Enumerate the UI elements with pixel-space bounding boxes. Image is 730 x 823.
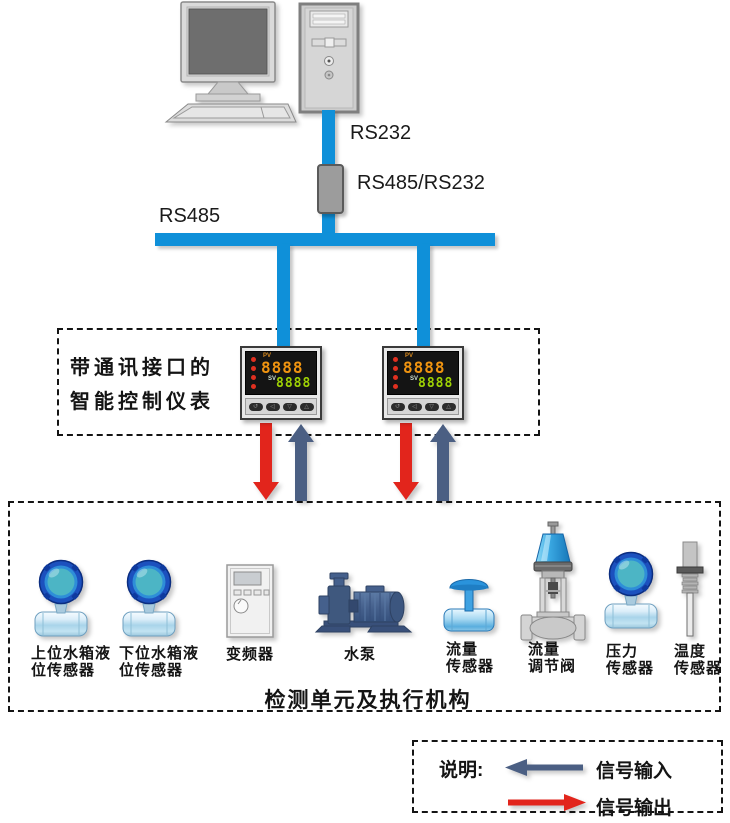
device-label: 变频器 bbox=[224, 646, 276, 663]
led-indicator bbox=[393, 384, 398, 389]
sv-label: SV bbox=[410, 376, 418, 382]
converter-label: RS485/RS232 bbox=[357, 172, 485, 195]
led-indicator bbox=[251, 375, 256, 380]
device-label: 流量 传感器 bbox=[446, 641, 494, 675]
led-indicator bbox=[251, 366, 256, 371]
controller-display: PV 8888 SV 8888 bbox=[245, 351, 317, 395]
sv-label: SV bbox=[268, 376, 276, 382]
rs485-label: RS485 bbox=[159, 205, 220, 228]
device-label: 温度 传感器 bbox=[674, 643, 722, 677]
bus-drop-1 bbox=[277, 244, 290, 348]
signal-input-arrow bbox=[287, 423, 315, 501]
shift-button[interactable]: ◁ bbox=[266, 403, 280, 411]
controller-display: PV 8888 SV 8888 bbox=[387, 351, 459, 395]
legend-label-output: 信号输出 bbox=[596, 793, 672, 820]
set-button[interactable]: ↺ bbox=[249, 403, 263, 411]
legend-box: 说明: 信号输入 信号输出 bbox=[412, 740, 723, 813]
detection-box-caption: 检测单元及执行机构 bbox=[208, 684, 528, 714]
up-button[interactable]: △ bbox=[442, 403, 456, 411]
smart-controller-1: PV 8888 SV 8888 ↺ ◁ ▽ △ bbox=[240, 346, 322, 420]
down-button[interactable]: ▽ bbox=[425, 403, 439, 411]
device-label: 压力 传感器 bbox=[606, 643, 654, 677]
bus-drop-2 bbox=[417, 244, 430, 348]
led-indicator bbox=[393, 375, 398, 380]
rs232-cable bbox=[322, 110, 335, 166]
rs485-rs232-converter bbox=[317, 164, 344, 214]
smart-controller-2: PV 8888 SV 8888 ↺ ◁ ▽ △ bbox=[382, 346, 464, 420]
rs232-label: RS232 bbox=[350, 122, 411, 145]
device-label: 流量 调节阀 bbox=[528, 641, 576, 675]
controller-box-title: 带通讯接口的 智能控制仪表 bbox=[70, 351, 214, 419]
computer-monitor-icon bbox=[158, 0, 298, 128]
pv-readout: 8888 bbox=[403, 358, 446, 377]
pv-readout: 8888 bbox=[261, 358, 304, 377]
signal-input-legend-arrow bbox=[505, 759, 583, 776]
signal-output-arrow bbox=[252, 423, 280, 501]
sv-readout: 8888 bbox=[276, 376, 311, 391]
led-indicator bbox=[393, 357, 398, 362]
legend-label-input: 信号输入 bbox=[596, 756, 672, 783]
device-label: 水泵 bbox=[334, 646, 386, 663]
signal-output-legend-arrow bbox=[508, 794, 586, 811]
computer-tower-icon bbox=[298, 2, 360, 114]
set-button[interactable]: ↺ bbox=[391, 403, 405, 411]
legend-title: 说明: bbox=[439, 755, 483, 782]
led-indicator bbox=[393, 366, 398, 371]
device-label: 上位水箱液 位传感器 bbox=[31, 645, 111, 679]
up-button[interactable]: △ bbox=[300, 403, 314, 411]
signal-output-arrow bbox=[392, 423, 420, 501]
shift-button[interactable]: ◁ bbox=[408, 403, 422, 411]
signal-input-arrow bbox=[429, 423, 457, 501]
device-label: 下位水箱液 位传感器 bbox=[119, 645, 199, 679]
detection-box bbox=[8, 501, 721, 712]
led-indicator bbox=[251, 357, 256, 362]
diagram-canvas: RS232 RS485/RS232 RS485 带通讯接口的 智能控制仪表 PV… bbox=[0, 0, 730, 823]
rs485-bus bbox=[155, 233, 495, 246]
led-indicator bbox=[251, 384, 256, 389]
down-button[interactable]: ▽ bbox=[283, 403, 297, 411]
sv-readout: 8888 bbox=[418, 376, 453, 391]
